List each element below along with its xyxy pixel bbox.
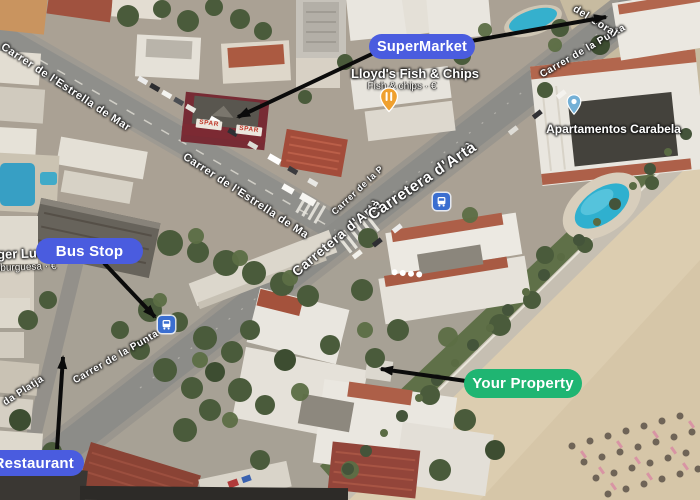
supermarket-building <box>181 92 270 151</box>
bus-stop-icon-annotated[interactable] <box>158 316 175 333</box>
restaurant-label-pill[interactable]: Restaurant <box>0 450 84 476</box>
bus-stop-label-pill[interactable]: Bus Stop <box>36 238 143 264</box>
supermarket-label-pill[interactable]: SuperMarket <box>369 34 475 59</box>
map: Carrer de l'Estrella de Mar Carrer de l'… <box>0 0 700 500</box>
restaurant-pin-icon[interactable] <box>379 87 399 118</box>
your-property-label-pill[interactable]: Your Property <box>464 369 582 398</box>
poi-carabela-name: Apartamentos Carabela <box>536 122 691 136</box>
bus-stop-icon-road[interactable] <box>433 193 450 210</box>
poi-lloyds-subtitle: Fish & chips · € <box>332 81 472 92</box>
poi-lloyds-name: Lloyd's Fish & Chips <box>330 66 500 81</box>
lodging-pin-icon[interactable] <box>566 94 582 120</box>
